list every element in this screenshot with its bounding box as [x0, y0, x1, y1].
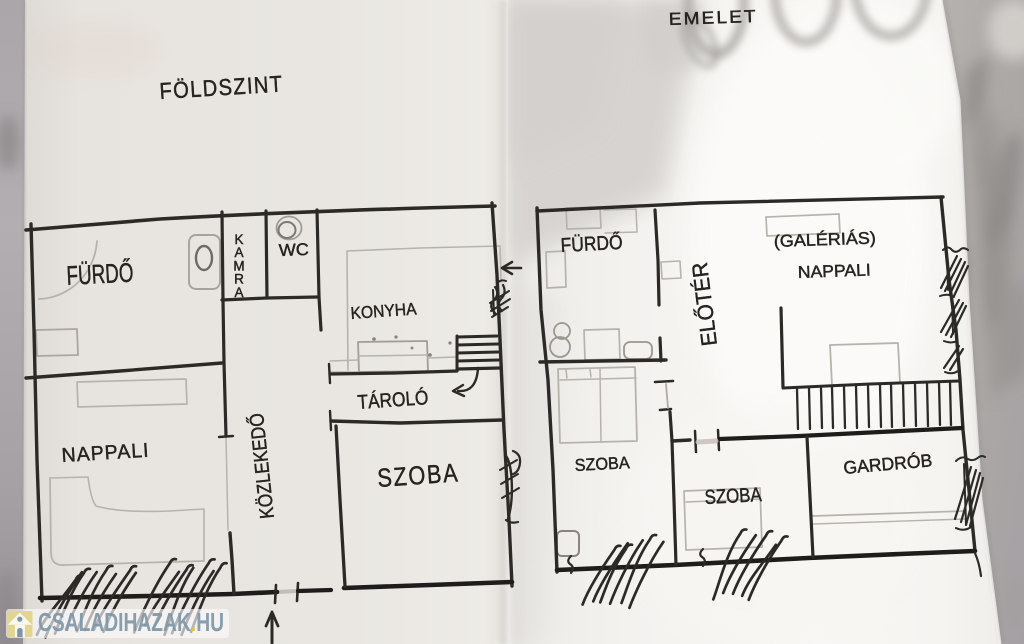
- svg-text:SZOBA: SZOBA: [574, 453, 631, 475]
- svg-text:FÜRDŐ: FÜRDŐ: [66, 257, 135, 291]
- svg-text:EMELET: EMELET: [668, 6, 758, 29]
- svg-text:SZOBA: SZOBA: [376, 457, 460, 493]
- svg-text:CSALADIHAZAK.HU: CSALADIHAZAK.HU: [38, 607, 224, 637]
- svg-text:(GALÉRIÁS): (GALÉRIÁS): [773, 228, 876, 251]
- svg-text:SZOBA: SZOBA: [704, 484, 763, 509]
- svg-text:WC: WC: [278, 240, 309, 260]
- svg-text:NAPPALI: NAPPALI: [797, 260, 871, 282]
- svg-text:A: A: [234, 285, 243, 300]
- svg-text:FÜRDŐ: FÜRDŐ: [560, 231, 623, 257]
